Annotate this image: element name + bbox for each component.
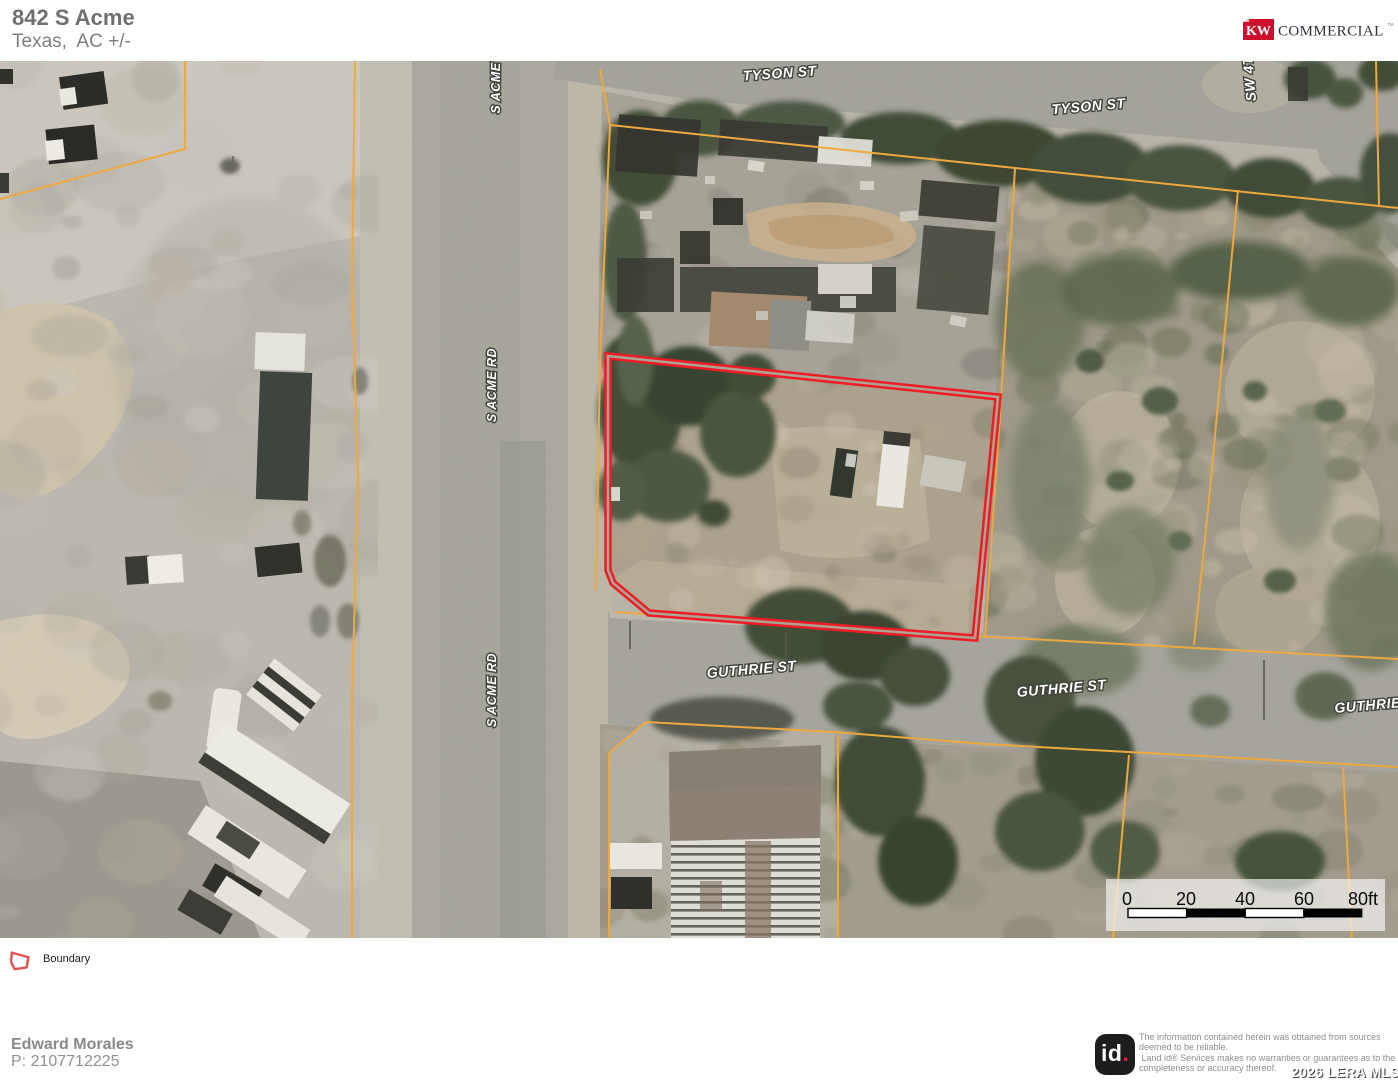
svg-text:0: 0 xyxy=(1122,889,1132,909)
svg-text:60: 60 xyxy=(1294,889,1314,909)
svg-text:S ACME RD: S ACME RD xyxy=(485,348,499,422)
svg-text:TM: TM xyxy=(1387,22,1394,27)
svg-text:40: 40 xyxy=(1235,889,1255,909)
svg-text:20: 20 xyxy=(1176,889,1196,909)
svg-text:COMMERCIAL: COMMERCIAL xyxy=(1278,24,1384,40)
svg-text:KW: KW xyxy=(1246,24,1271,39)
svg-text:S ACME: S ACME xyxy=(489,62,503,113)
svg-text:80ft: 80ft xyxy=(1348,889,1378,909)
svg-text:S ACME RD: S ACME RD xyxy=(485,653,499,727)
